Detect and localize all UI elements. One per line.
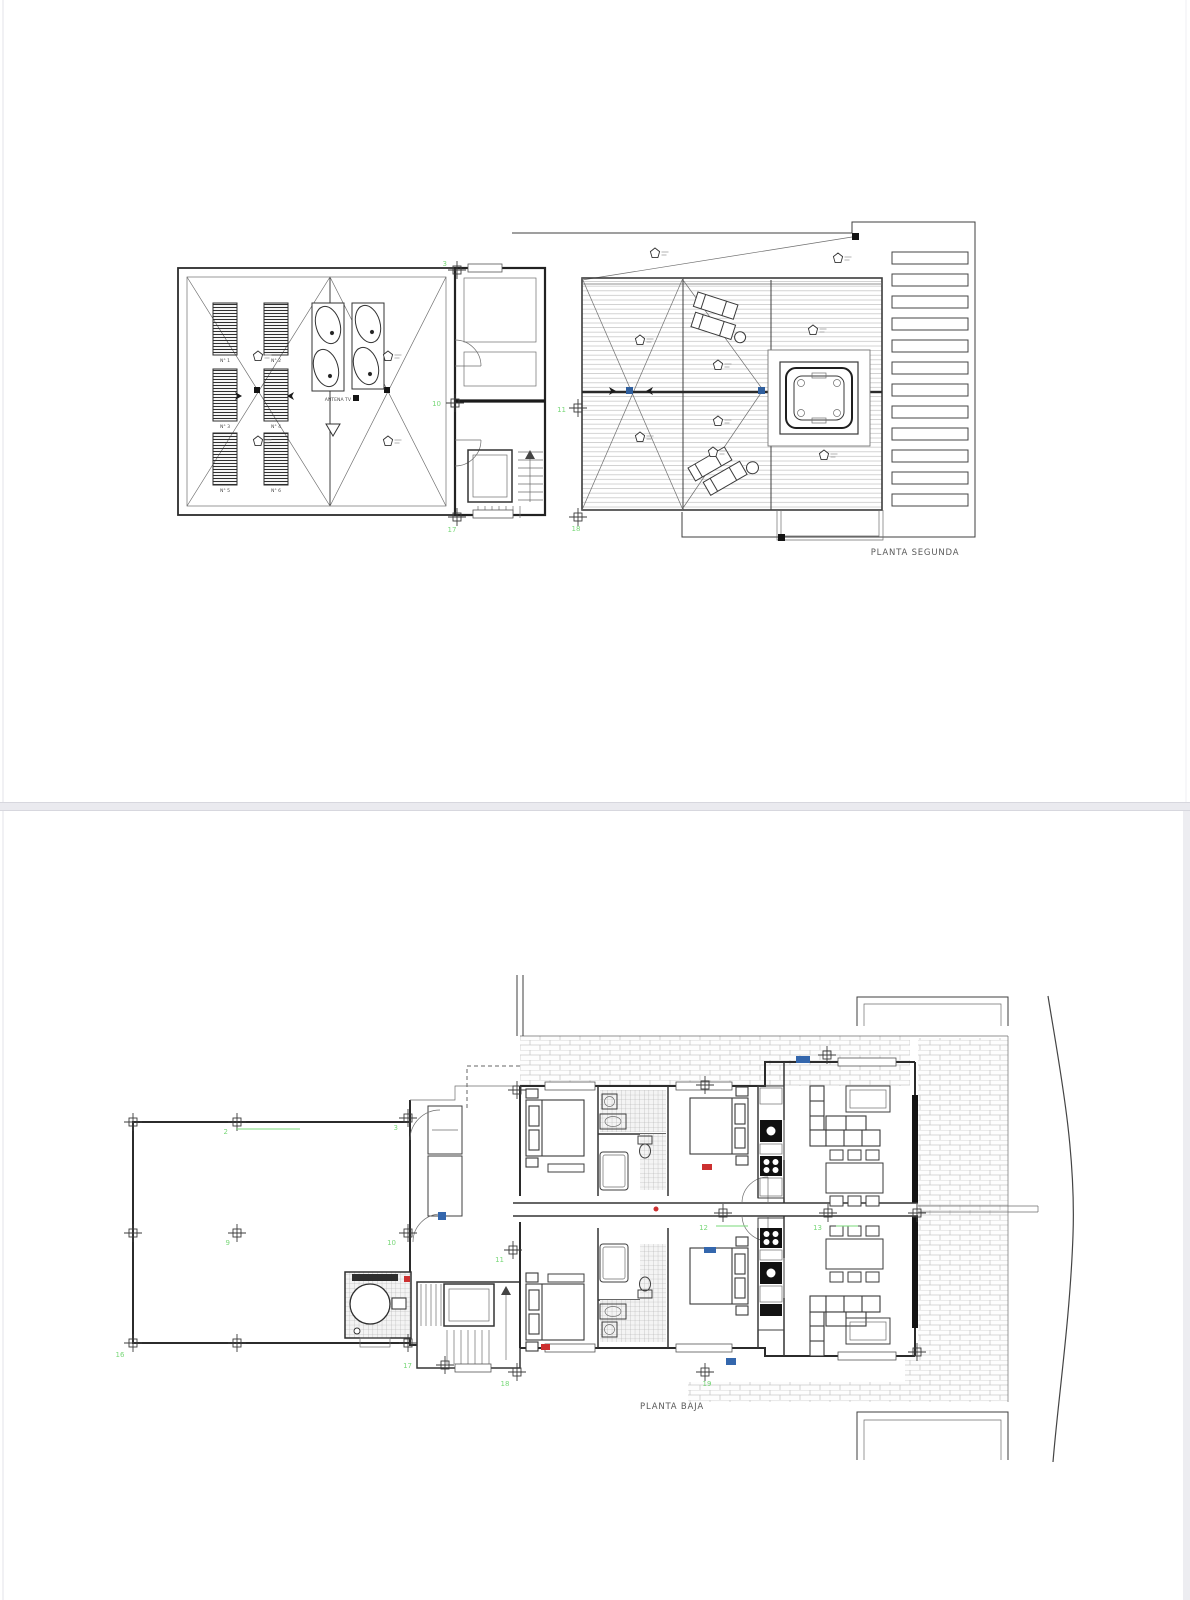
column-number: 18 [572, 525, 581, 533]
panel-label: N° 3 [220, 424, 230, 430]
sheet-title-planta-baja: PLANTA BAJA [640, 1402, 704, 1412]
column-number: 9 [226, 1239, 230, 1247]
spa-room [345, 1272, 411, 1347]
column-number: 11 [495, 1256, 504, 1264]
pergola [892, 252, 968, 506]
antenna-icon [353, 395, 359, 401]
canopy-dashed-line [467, 1066, 520, 1108]
round-tub [350, 1284, 390, 1324]
page-divider [0, 802, 1190, 811]
sofa [810, 1086, 880, 1146]
column-number: 16 [116, 1351, 125, 1359]
plans-drawing: N° 1 N° 2 N° 3 N° 4 N° 5 N° 6 ANTENA TV [0, 0, 1190, 1600]
column-number: 2 [224, 1128, 228, 1136]
column-number: 3 [394, 1124, 398, 1132]
column-number: 12 [699, 1224, 708, 1232]
plot-boundary-curve [1048, 996, 1073, 1462]
planter-top [857, 997, 1008, 1026]
roof-deck [512, 222, 975, 541]
jacuzzi [768, 350, 870, 446]
column-number: 10 [387, 1239, 396, 1247]
bathroom-upper [600, 1090, 666, 1190]
stair-core-top [455, 264, 545, 518]
dining-table [826, 1226, 883, 1282]
bed [526, 1089, 584, 1167]
panel-label: N° 4 [271, 424, 281, 430]
panel-label: N° 1 [220, 358, 230, 364]
page-edges [3, 0, 1190, 1600]
bed [690, 1237, 748, 1315]
column-number: 17 [448, 526, 457, 534]
panel-label: N° 5 [220, 488, 230, 494]
column-number: 3 [443, 260, 447, 268]
antenna-label: ANTENA TV [325, 397, 352, 403]
sheet-planta-segunda: N° 1 N° 2 N° 3 N° 4 N° 5 N° 6 ANTENA TV [178, 222, 975, 558]
kitchen-lower [758, 1218, 784, 1330]
apartment-lower [526, 1218, 890, 1356]
column-number: 18 [501, 1380, 510, 1388]
entry-core [345, 1066, 520, 1372]
sheet-title-planta-segunda: PLANTA SEGUNDA [871, 548, 960, 558]
bathroom-lower [600, 1244, 666, 1342]
column-number: 11 [557, 406, 566, 414]
column-number: 19 [703, 1380, 712, 1388]
document-canvas: N° 1 N° 2 N° 3 N° 4 N° 5 N° 6 ANTENA TV [0, 0, 1190, 1600]
bed [690, 1087, 748, 1165]
roof-block: N° 1 N° 2 N° 3 N° 4 N° 5 N° 6 ANTENA TV [178, 268, 455, 515]
bed [526, 1273, 584, 1351]
planter-bottom [857, 1412, 1008, 1460]
sheet-planta-baja: 2 3 9 10 11 12 13 16 17 18 19 PLANTA BAJ… [116, 975, 1074, 1462]
roof-node-marker [626, 387, 633, 394]
kitchen-upper [758, 1086, 784, 1198]
stairs-ground [417, 1282, 520, 1372]
roof-node-marker [758, 387, 765, 394]
panel-label: N° 6 [271, 488, 281, 494]
living-upper [810, 1086, 890, 1206]
column-number: 10 [432, 400, 441, 408]
column-number: 17 [403, 1362, 412, 1370]
apartment-upper [526, 1086, 890, 1206]
living-lower [810, 1226, 890, 1356]
elevator-ground [444, 1284, 494, 1326]
panel-label: N° 2 [271, 358, 281, 364]
sofa [810, 1296, 880, 1356]
dining-table [826, 1150, 883, 1206]
column-number: 13 [813, 1224, 822, 1232]
